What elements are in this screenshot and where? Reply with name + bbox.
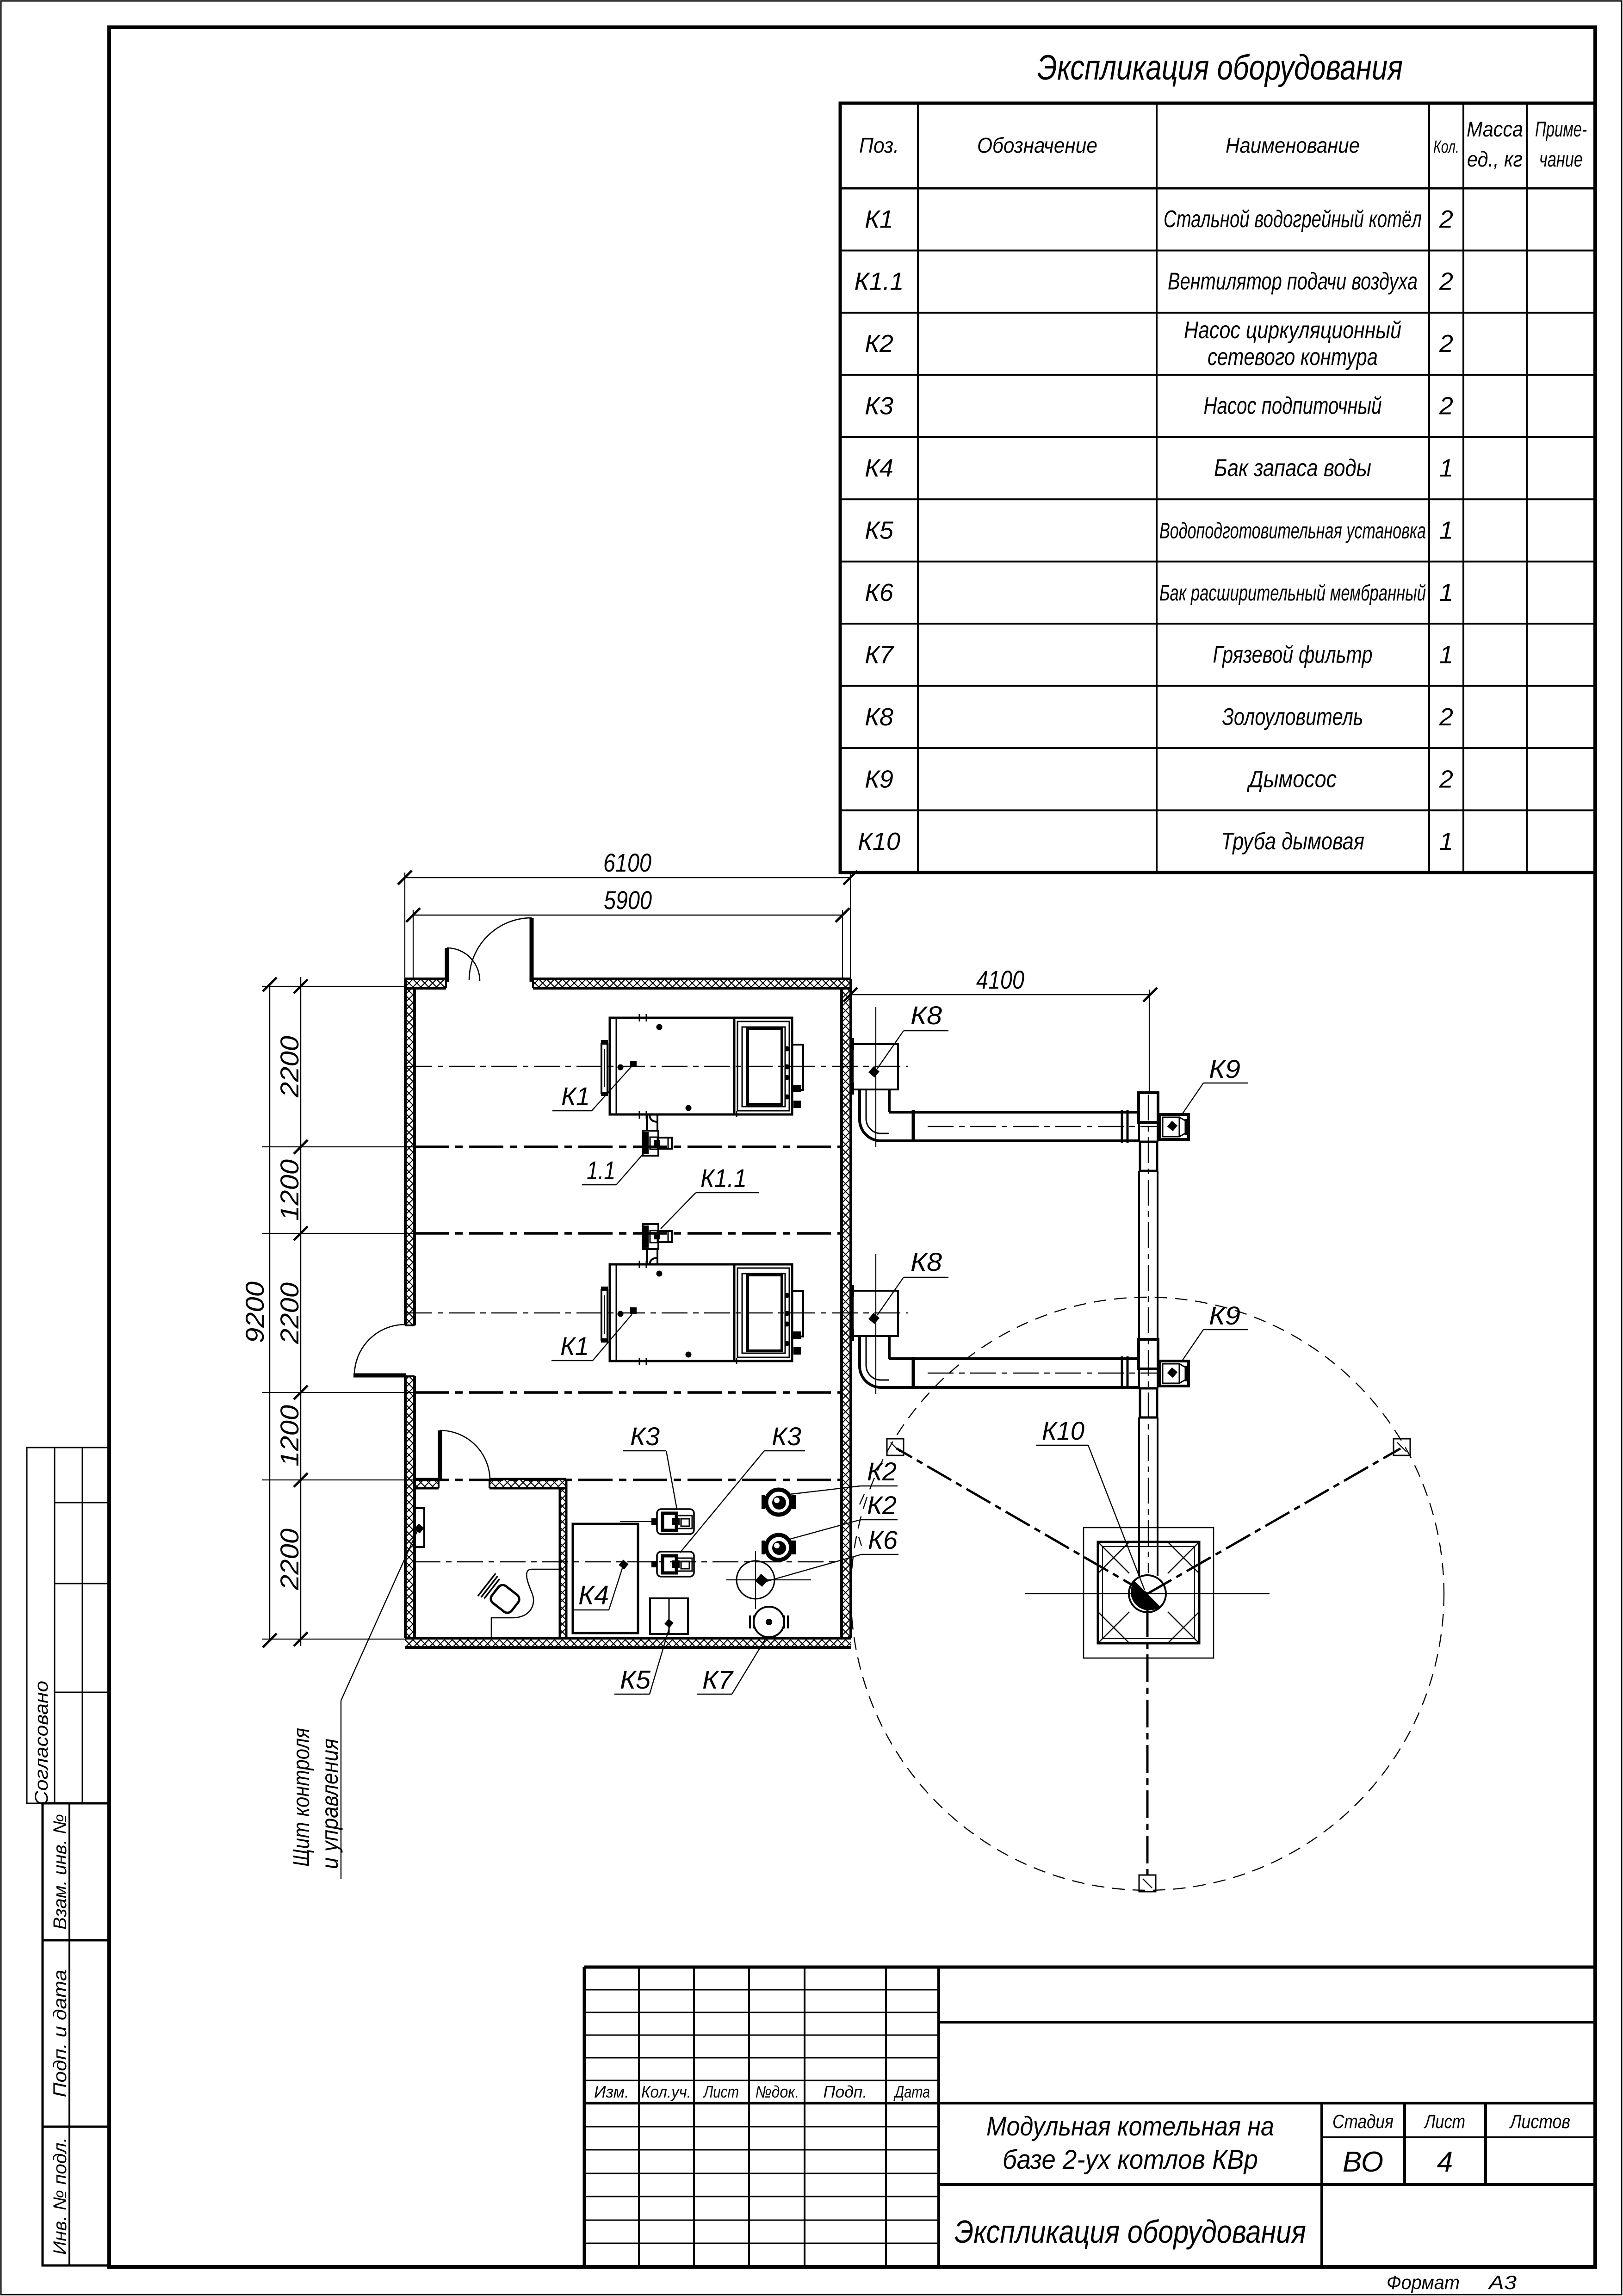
svg-text:Дымосос: Дымосос	[1247, 766, 1337, 792]
svg-text:Взам. инв. №: Взам. инв. №	[50, 1814, 70, 1930]
svg-text:Щит контроля: Щит контроля	[288, 1728, 314, 1867]
svg-text:К9: К9	[865, 765, 893, 793]
svg-text:К5: К5	[620, 1665, 651, 1694]
svg-text:2: 2	[1439, 205, 1453, 233]
svg-text:Приме-: Приме-	[1535, 117, 1587, 141]
svg-text:К1.1: К1.1	[855, 268, 904, 296]
svg-text:1: 1	[1439, 828, 1453, 855]
svg-text:2: 2	[1439, 765, 1453, 793]
svg-text:Модульная котельная на: Модульная котельная на	[986, 2111, 1274, 2141]
svg-text:К1: К1	[560, 1331, 589, 1361]
svg-text:5900: 5900	[604, 885, 652, 915]
svg-text:Бак расширительный мембранный: Бак расширительный мембранный	[1159, 581, 1426, 606]
svg-text:сетевого контура: сетевого контура	[1208, 344, 1378, 371]
svg-text:Стальной водогрейный котёл: Стальной водогрейный котёл	[1164, 206, 1422, 233]
svg-text:К8: К8	[865, 703, 893, 731]
svg-text:Экспликация оборудования: Экспликация оборудования	[1037, 48, 1403, 87]
svg-text:2: 2	[1439, 392, 1453, 420]
svg-text:№док.: №док.	[756, 2082, 799, 2101]
svg-text:Листов: Листов	[1509, 2110, 1570, 2132]
svg-text:Лист: Лист	[703, 2082, 739, 2101]
svg-text:Изм.: Изм.	[594, 2082, 629, 2101]
svg-text:базе 2-ух котлов КВр: базе 2-ух котлов КВр	[1003, 2145, 1258, 2175]
svg-text:К7: К7	[702, 1665, 734, 1694]
svg-text:ВО: ВО	[1343, 2146, 1383, 2178]
svg-text:ед., кг: ед., кг	[1467, 147, 1523, 171]
svg-text:Вентилятор подачи воздуха: Вентилятор подачи воздуха	[1168, 268, 1418, 295]
svg-text:Золоуловитель: Золоуловитель	[1222, 704, 1363, 730]
svg-text:Наименование: Наименование	[1226, 133, 1360, 157]
svg-text:2200: 2200	[275, 1529, 304, 1590]
svg-text:чание: чание	[1539, 147, 1583, 171]
svg-text:1200: 1200	[275, 1159, 304, 1221]
svg-text:Насос подпиточный: Насос подпиточный	[1204, 393, 1382, 420]
svg-text:Экспликация оборудования: Экспликация оборудования	[954, 2214, 1306, 2250]
svg-text:К1: К1	[561, 1082, 590, 1111]
svg-text:К6: К6	[868, 1525, 898, 1554]
svg-text:Обозначение: Обозначение	[977, 133, 1097, 157]
svg-text:Инв. № подл.: Инв. № подл.	[50, 2137, 70, 2255]
svg-text:Водоподготовительная установка: Водоподготовительная установка	[1159, 519, 1426, 544]
svg-text:К2: К2	[867, 1457, 897, 1486]
svg-text:Лист: Лист	[1424, 2110, 1465, 2132]
svg-text:4100: 4100	[976, 965, 1024, 994]
svg-text:Насос циркуляционный: Насос циркуляционный	[1184, 317, 1401, 344]
svg-text:К9: К9	[1209, 1054, 1240, 1083]
svg-text:2: 2	[1439, 268, 1453, 296]
svg-text:К4: К4	[865, 454, 893, 482]
svg-text:Подп. и дата: Подп. и дата	[50, 1970, 70, 2098]
svg-text:Согласовано: Согласовано	[31, 1681, 52, 1806]
svg-text:Грязевой фильтр: Грязевой фильтр	[1213, 641, 1373, 668]
svg-text:4: 4	[1437, 2146, 1453, 2178]
svg-text:К6: К6	[865, 579, 894, 606]
svg-text:К2: К2	[867, 1491, 897, 1520]
svg-text:9200: 9200	[240, 1281, 269, 1343]
svg-text:К3: К3	[772, 1422, 801, 1451]
svg-text:К8: К8	[911, 1001, 942, 1030]
svg-text:Подп.: Подп.	[824, 2082, 867, 2101]
svg-text:1: 1	[1439, 579, 1453, 606]
svg-text:Стадия: Стадия	[1332, 2110, 1394, 2132]
svg-text:1: 1	[1439, 641, 1453, 668]
svg-text:К4: К4	[578, 1580, 609, 1610]
svg-text:К3: К3	[865, 392, 893, 420]
svg-text:2200: 2200	[275, 1282, 304, 1344]
svg-text:2: 2	[1439, 703, 1453, 731]
svg-text:Формат: Формат	[1387, 2271, 1460, 2293]
svg-text:К10: К10	[858, 828, 900, 855]
svg-text:К2: К2	[865, 330, 893, 358]
svg-text:Труба дымовая: Труба дымовая	[1221, 828, 1364, 855]
svg-text:2: 2	[1439, 330, 1453, 358]
svg-text:А3: А3	[1487, 2271, 1517, 2293]
svg-text:1.1: 1.1	[587, 1156, 615, 1185]
svg-text:Кол.уч.: Кол.уч.	[641, 2082, 691, 2101]
svg-text:Масса: Масса	[1467, 117, 1523, 141]
svg-text:и управления: и управления	[317, 1739, 343, 1869]
svg-text:Бак запаса воды: Бак запаса воды	[1214, 455, 1371, 482]
svg-text:1200: 1200	[275, 1405, 304, 1467]
svg-text:К10: К10	[1042, 1416, 1084, 1445]
svg-text:К1: К1	[865, 205, 893, 233]
svg-text:К8: К8	[911, 1247, 942, 1276]
svg-text:К9: К9	[1209, 1301, 1240, 1330]
svg-text:К1.1: К1.1	[700, 1163, 747, 1193]
svg-text:6100: 6100	[603, 848, 651, 877]
svg-text:Кол.: Кол.	[1433, 137, 1459, 157]
svg-text:К7: К7	[865, 641, 894, 668]
svg-text:2200: 2200	[275, 1036, 304, 1098]
svg-text:1: 1	[1439, 454, 1453, 482]
svg-text:К5: К5	[865, 517, 894, 545]
svg-text:Поз.: Поз.	[859, 133, 899, 157]
svg-text:К3: К3	[630, 1422, 660, 1451]
svg-text:1: 1	[1439, 517, 1453, 545]
svg-text:Дата: Дата	[893, 2082, 930, 2101]
